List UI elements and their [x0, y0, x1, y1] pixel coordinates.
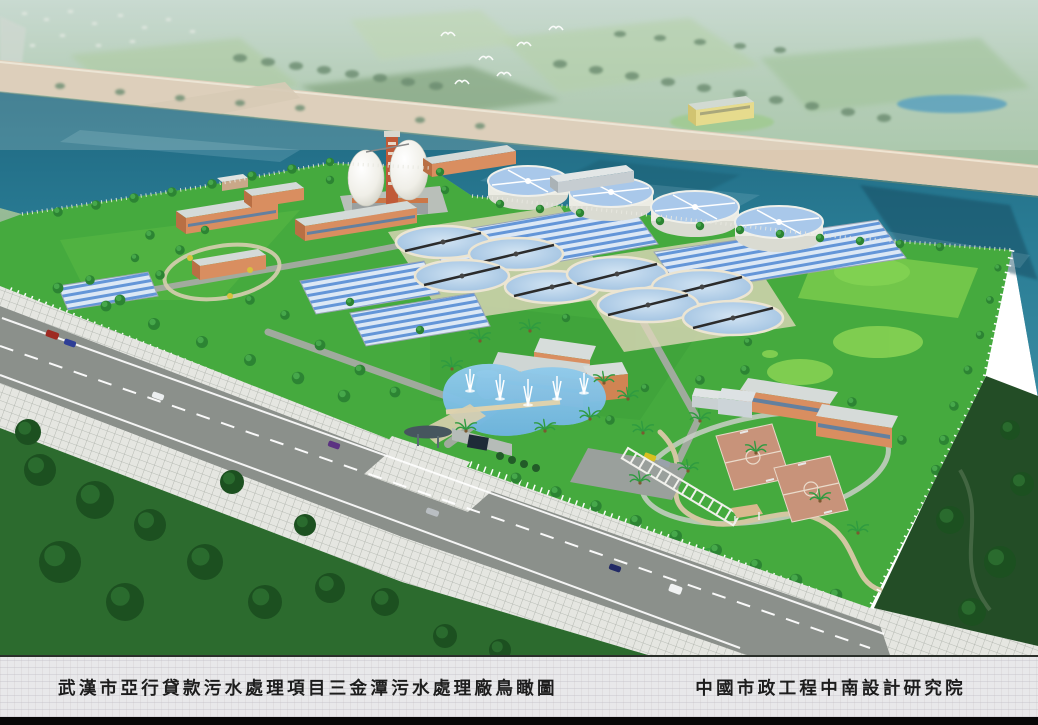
- egg-digester-2: [390, 140, 428, 200]
- caption-title: 武漢市亞行貸款污水處理項目三金潭污水處理廠鳥瞰圖: [58, 675, 558, 700]
- gate-canopy: [404, 426, 452, 439]
- dormitory: [718, 388, 756, 418]
- egg-digester-1: [348, 150, 384, 206]
- rendering-board: 武漢市亞行貸款污水處理項目三金潭污水處理廠鳥瞰圖 中國市政工程中南設計研究院: [0, 0, 1038, 725]
- small-annex: [692, 388, 721, 410]
- caption-credit: 中國市政工程中南設計研究院: [695, 675, 966, 700]
- aerial-rendering: [0, 0, 1038, 655]
- clarifier: [415, 260, 509, 292]
- bottom-black-strip: [0, 717, 1038, 725]
- elevated-tank: [651, 191, 739, 237]
- haze-overlay: [0, 0, 1038, 150]
- elevated-tank: [735, 206, 823, 252]
- clarifier: [683, 301, 783, 335]
- caption-bar: 武漢市亞行貸款污水處理項目三金潭污水處理廠鳥瞰圖 中國市政工程中南設計研究院: [0, 655, 1038, 717]
